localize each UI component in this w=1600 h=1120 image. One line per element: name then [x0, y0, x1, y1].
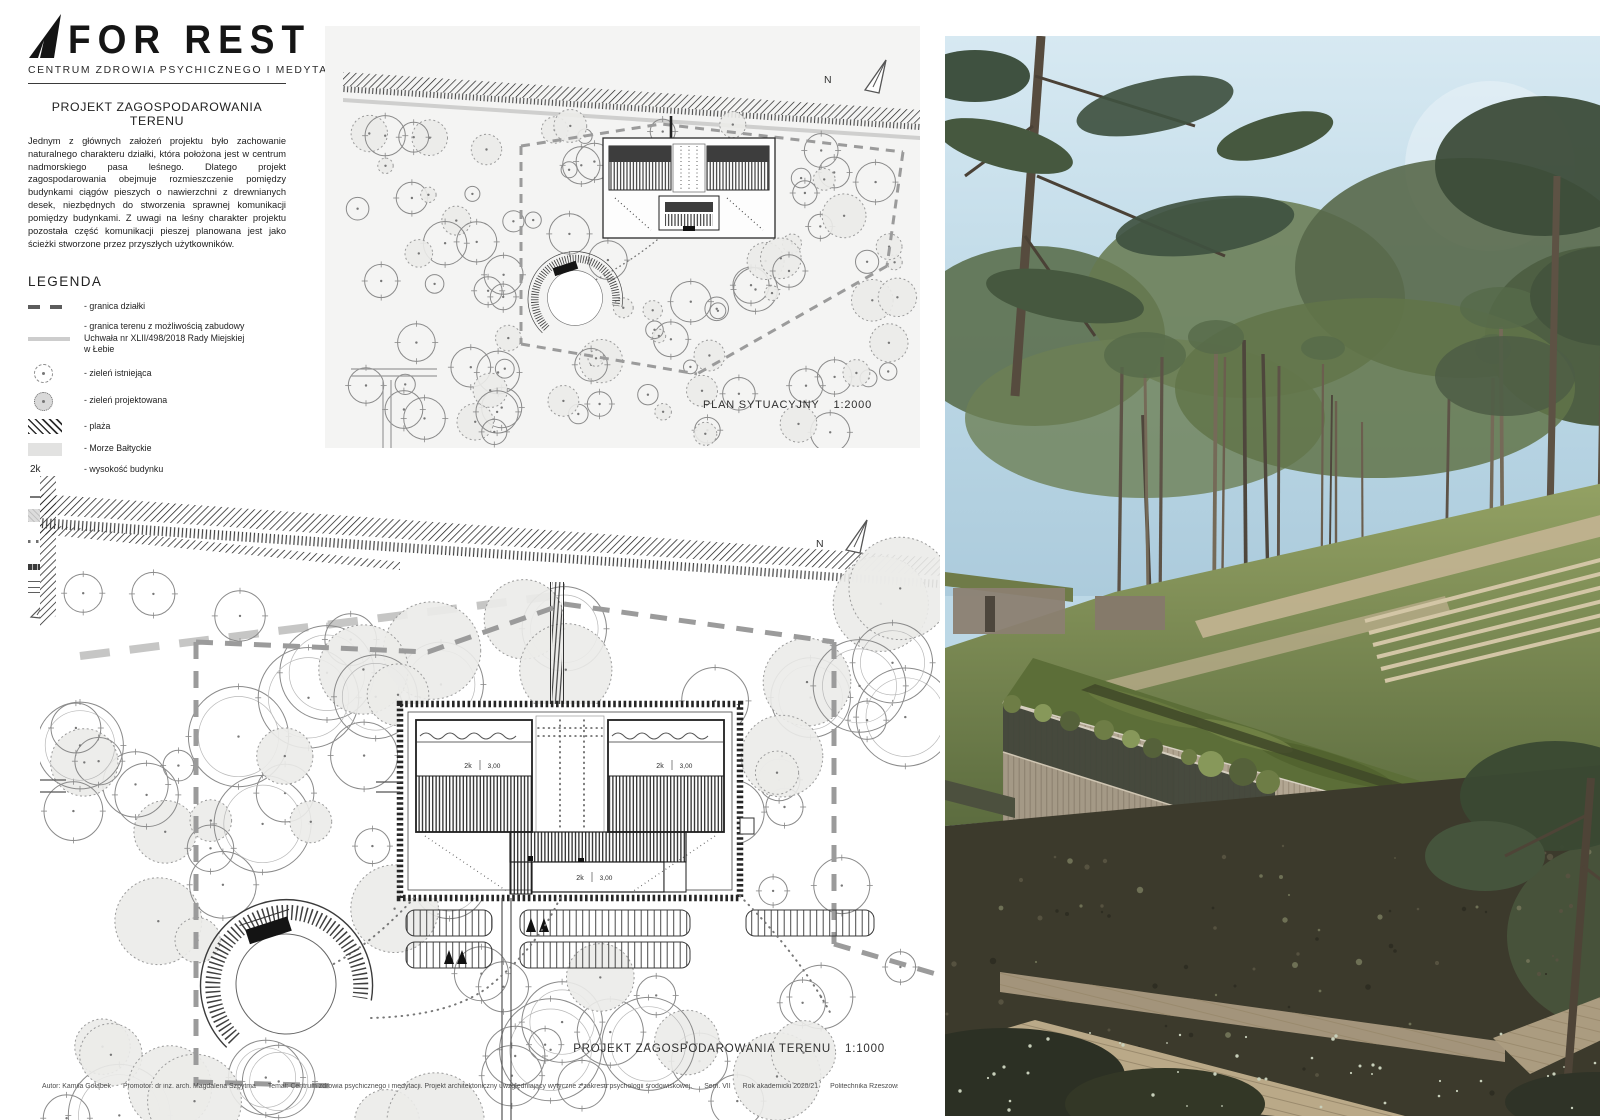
- flower-dot: [1009, 1100, 1012, 1103]
- tree-center-dot: [480, 973, 482, 975]
- plant: [1034, 704, 1052, 722]
- credit-author: Autor: Kamila Gołąbek: [42, 1083, 111, 1090]
- plant: [1229, 758, 1257, 786]
- beach-hatch-symbol: [28, 419, 84, 434]
- tree-center-dot: [899, 587, 901, 589]
- tree-center-dot: [363, 754, 365, 756]
- plant: [1003, 695, 1021, 713]
- ground-speck: [1537, 972, 1541, 976]
- tree-center-dot: [568, 233, 570, 235]
- flower-dot: [992, 1072, 995, 1075]
- tree-center-dot: [532, 219, 534, 221]
- tree-center-dot: [222, 884, 224, 886]
- flower-dot: [1378, 1066, 1381, 1069]
- flower-dot: [1177, 1071, 1179, 1073]
- tree-center-dot: [476, 241, 478, 243]
- flower-dot: [1331, 1037, 1335, 1041]
- ground-speck: [1137, 887, 1143, 893]
- tree-center-dot: [738, 393, 740, 395]
- proposed-green-symbol: [28, 392, 84, 411]
- svg-text:2k: 2k: [576, 875, 584, 882]
- tree-center-dot: [690, 301, 692, 303]
- ground-speck: [1555, 958, 1558, 961]
- tree-center-dot: [157, 920, 159, 922]
- ground-speck: [1545, 973, 1547, 975]
- tree-center-dot: [670, 338, 672, 340]
- ground-speck: [1377, 914, 1382, 919]
- ground-speck: [1259, 874, 1263, 878]
- ground-speck: [1038, 916, 1043, 921]
- tree-center-dot: [593, 160, 595, 162]
- tree-center-dot: [82, 592, 84, 594]
- tree-center-dot: [776, 1075, 778, 1077]
- flower-dot: [1007, 1108, 1010, 1111]
- sea-symbol: [28, 443, 84, 456]
- north-label: N: [816, 538, 824, 550]
- tree-center-dot: [653, 329, 655, 331]
- tree-center-dot: [471, 193, 473, 195]
- ground-speck: [1288, 1006, 1291, 1009]
- ground-speck: [946, 1013, 949, 1016]
- tree-center-dot: [595, 357, 597, 359]
- tree-trunk: [1214, 351, 1216, 607]
- ground-speck: [1319, 990, 1322, 993]
- flower-dot: [1371, 1063, 1374, 1066]
- flower-dot: [1552, 1072, 1555, 1075]
- tree-center-dot: [797, 423, 799, 425]
- tree-center-dot: [356, 208, 358, 210]
- legend-heading: LEGENDA: [28, 274, 286, 289]
- tree-center-dot: [754, 288, 756, 290]
- flower-dot: [1320, 1106, 1323, 1109]
- ground-speck: [1559, 909, 1563, 913]
- tree-center-dot: [655, 994, 657, 996]
- plant: [1181, 749, 1197, 765]
- flower-dot: [1563, 1066, 1565, 1068]
- render-photo: [945, 36, 1600, 1116]
- tree-center-dot: [622, 307, 624, 309]
- tree-center-dot: [384, 135, 386, 137]
- ground-speck: [1476, 906, 1479, 909]
- flower-dot: [1028, 1044, 1031, 1047]
- ground-speck: [1067, 858, 1073, 864]
- ground-speck: [1189, 1033, 1194, 1038]
- logo-title: FOR REST: [68, 20, 311, 60]
- flower-dot: [1456, 1090, 1458, 1092]
- ground-speck: [1393, 949, 1397, 953]
- tree-center-dot: [855, 372, 857, 374]
- tree-center-dot: [514, 1055, 516, 1057]
- tree-trunk: [1160, 357, 1162, 613]
- tree-center-dot: [871, 299, 873, 301]
- tree-center-dot: [368, 132, 370, 134]
- tree-center-dot: [801, 1002, 803, 1004]
- site-plan-1-2000: [325, 26, 920, 448]
- tree-center-dot: [561, 1021, 563, 1023]
- ground-speck: [1435, 961, 1439, 965]
- legend-item: 2k - wysokość budynku: [28, 464, 286, 475]
- building-complex: 2k 3,00 2k 3,00: [400, 704, 754, 898]
- ground-speck: [1569, 904, 1573, 908]
- flower-dot: [1166, 1042, 1168, 1044]
- ground-speck: [1107, 914, 1111, 918]
- ground-speck: [1356, 959, 1362, 965]
- ground-speck: [1389, 944, 1394, 949]
- tree-center-dot: [662, 130, 664, 132]
- ground-speck: [1302, 1067, 1305, 1070]
- flower-dot: [1371, 1073, 1373, 1075]
- ground-speck: [1165, 1025, 1168, 1028]
- legend-item: - zieleń istniejąca: [28, 364, 286, 383]
- ground-speck: [1225, 1032, 1231, 1038]
- tree-center-dot: [209, 847, 211, 849]
- tree-center-dot: [819, 225, 821, 227]
- tree-center-dot: [455, 219, 457, 221]
- plant: [1060, 711, 1080, 731]
- north-arrow: [865, 60, 886, 93]
- tree-center-dot: [776, 772, 778, 774]
- tree-center-dot: [487, 290, 489, 292]
- tree-center-dot: [134, 783, 136, 785]
- ground-speck: [998, 999, 1003, 1004]
- tree-center-dot: [152, 593, 154, 595]
- ground-speck: [1222, 855, 1226, 859]
- credit-university: Politechnika Rzeszowska: [830, 1083, 898, 1090]
- ground-speck: [1296, 952, 1299, 955]
- tree-logo-icon: [28, 14, 62, 58]
- flower-dot: [1359, 1065, 1362, 1068]
- tree-center-dot: [239, 615, 241, 617]
- tree-center-dot: [717, 310, 719, 312]
- svg-text:3,00: 3,00: [488, 763, 501, 770]
- tree-center-dot: [599, 976, 601, 978]
- tree-center-dot: [493, 431, 495, 433]
- flower-dot: [1480, 1080, 1483, 1083]
- beach-hatch: [343, 72, 920, 124]
- tree-center-dot: [783, 806, 785, 808]
- tree-center-dot: [371, 845, 373, 847]
- tree-center-dot: [362, 668, 364, 670]
- legend-item: - granica terenu z możliwością zabudowy …: [28, 321, 286, 355]
- tree-center-dot: [806, 681, 808, 683]
- tree-center-dot: [716, 308, 718, 310]
- ground-speck: [951, 961, 956, 966]
- tree-inner-ring: [866, 678, 940, 757]
- ground-speck: [1288, 894, 1290, 896]
- tree-center-dot: [708, 354, 710, 356]
- existing-green-symbol: [28, 364, 84, 383]
- tree-center-dot: [164, 831, 166, 833]
- tree-canopy: [1460, 287, 1542, 329]
- tree-center-dot: [403, 408, 405, 410]
- flower-dot: [1119, 1042, 1121, 1044]
- tree-center-dot: [704, 433, 706, 435]
- flower-dot: [1384, 1102, 1387, 1105]
- tree-symbol: [43, 1095, 90, 1120]
- flower-dot: [1439, 1080, 1441, 1082]
- ground-speck: [1234, 985, 1237, 988]
- tree-center-dot: [904, 716, 906, 718]
- tree-center-dot: [502, 296, 504, 298]
- ground-speck: [1213, 926, 1217, 930]
- tree-center-dot: [609, 1031, 611, 1033]
- flower-dot: [1121, 1043, 1124, 1046]
- building-height-symbol: 2k: [28, 464, 84, 475]
- ground-speck: [1566, 874, 1571, 879]
- tree-center-dot: [284, 755, 286, 757]
- tree-center-dot: [97, 760, 99, 762]
- tree-center-dot: [193, 1100, 195, 1102]
- tree-center-dot: [887, 370, 889, 372]
- flower-dot: [1151, 1093, 1154, 1096]
- svg-text:2k: 2k: [464, 763, 472, 770]
- tree-center-dot: [497, 371, 499, 373]
- flower-dot: [1245, 1036, 1247, 1038]
- logo: FOR REST: [28, 14, 286, 58]
- tree-center-dot: [568, 169, 570, 171]
- intro-section: PROJEKT ZAGOSPODAROWANIA TERENU Jednym z…: [28, 100, 286, 250]
- tree-canopy: [1104, 332, 1186, 378]
- tree-center-dot: [771, 292, 773, 294]
- tree-center-dot: [823, 178, 825, 180]
- north-label: N: [824, 74, 832, 86]
- tree-center-dot: [307, 697, 309, 699]
- plan1-caption: PLAN SYTUACYJNY1:2000: [520, 399, 872, 411]
- tree-center-dot: [896, 296, 898, 298]
- tree-center-dot: [413, 136, 415, 138]
- tree-center-dot: [843, 215, 845, 217]
- tree-center-dot: [380, 280, 382, 282]
- asphalt-road: [351, 369, 437, 448]
- flower-dot: [1350, 1072, 1352, 1074]
- flower-dot: [1235, 1054, 1238, 1057]
- tree-center-dot: [423, 417, 425, 419]
- tree-center-dot: [261, 823, 263, 825]
- svg-text:3,00: 3,00: [600, 875, 613, 882]
- tree-center-dot: [732, 123, 734, 125]
- tree-center-dot: [772, 890, 774, 892]
- ground-speck: [1108, 1029, 1111, 1032]
- ground-speck: [1485, 911, 1487, 913]
- ground-speck: [1389, 910, 1392, 913]
- tree-center-dot: [75, 727, 77, 729]
- flower-dot: [1046, 1037, 1049, 1040]
- ground-speck: [1292, 962, 1298, 968]
- tree-center-dot: [365, 384, 367, 386]
- tree-center-dot: [145, 794, 147, 796]
- tree-center-dot: [118, 1114, 120, 1116]
- tree-center-dot: [496, 411, 498, 413]
- ground-speck: [1462, 907, 1466, 911]
- flower-dot: [1213, 1072, 1216, 1075]
- credit-year: Rok akademicki 2020/21: [743, 1083, 818, 1090]
- tree-center-dot: [310, 821, 312, 823]
- tree-center-dot: [474, 421, 476, 423]
- ground-speck: [999, 906, 1004, 911]
- flower-dot: [1594, 1062, 1597, 1065]
- legend-item: - Morze Bałtyckie: [28, 443, 286, 456]
- tree-center-dot: [237, 735, 239, 737]
- tree-center-dot: [502, 274, 504, 276]
- tree-center-dot: [444, 242, 446, 244]
- tree-center-dot: [874, 181, 876, 183]
- ground-speck: [1035, 961, 1037, 963]
- ground-speck: [1100, 904, 1103, 907]
- tree-center-dot: [177, 764, 179, 766]
- tree-center-dot: [866, 719, 868, 721]
- tree-center-dot: [800, 177, 802, 179]
- plant: [1143, 738, 1163, 758]
- tree-center-dot: [788, 270, 790, 272]
- tree-center-dot: [512, 220, 514, 222]
- tree-center-dot: [83, 761, 85, 763]
- ground-speck: [1552, 955, 1554, 957]
- flower-dot: [1089, 1032, 1091, 1034]
- plant: [1122, 730, 1140, 748]
- tree-center-dot: [404, 383, 406, 385]
- flower-dot: [1027, 1072, 1030, 1075]
- ground-speck: [1489, 1090, 1494, 1095]
- flower-dot: [1311, 1057, 1314, 1060]
- tree-center-dot: [384, 165, 386, 167]
- tree-center-dot: [647, 394, 649, 396]
- tree-center-dot: [504, 368, 506, 370]
- ground-speck: [1152, 983, 1157, 988]
- tree-center-dot: [418, 252, 420, 254]
- tree-center-dot: [750, 284, 752, 286]
- tree-center-dot: [65, 1117, 67, 1119]
- tree-center-dot: [858, 685, 860, 687]
- tree-center-dot: [736, 1100, 738, 1102]
- ground-speck: [1079, 904, 1082, 907]
- tree-center-dot: [565, 669, 567, 671]
- intro-heading: PROJEKT ZAGOSPODAROWANIA TERENU: [28, 100, 286, 128]
- ground-speck: [1315, 937, 1319, 941]
- ground-speck: [1054, 856, 1057, 859]
- ground-speck: [990, 958, 996, 964]
- tree-center-dot: [501, 406, 503, 408]
- tree-center-dot: [433, 283, 435, 285]
- tree-center-dot: [411, 197, 413, 199]
- flower-dot: [1438, 1095, 1441, 1098]
- flower-dot: [1571, 1107, 1573, 1109]
- ground-speck: [1365, 984, 1371, 990]
- ground-speck: [1084, 864, 1089, 869]
- tree-center-dot: [820, 149, 822, 151]
- credit-semester: Sem. VII: [704, 1083, 730, 1090]
- tree-center-dot: [888, 342, 890, 344]
- flower-dot: [1257, 1077, 1261, 1081]
- tree-center-dot: [210, 819, 212, 821]
- flower-dot: [1500, 1033, 1503, 1036]
- flower-dot: [1334, 1034, 1337, 1037]
- tree-symbol: [387, 1073, 484, 1120]
- flower-dot: [958, 1089, 961, 1092]
- ground-speck: [1409, 1023, 1412, 1026]
- north-arrow: [846, 520, 867, 553]
- flower-dot: [987, 1077, 989, 1079]
- logo-subtitle: CENTRUM ZDROWIA PSYCHICZNEGO I MEDYTACJI: [28, 65, 286, 84]
- tree-center-dot: [689, 366, 691, 368]
- tree-trunk: [1244, 340, 1246, 598]
- flower-dot: [1179, 1034, 1181, 1036]
- ground-speck: [1279, 875, 1283, 879]
- ground-speck: [1394, 857, 1396, 859]
- tree-center-dot: [397, 694, 399, 696]
- flower-dot: [1221, 1105, 1223, 1107]
- flower-dot: [1265, 1078, 1268, 1081]
- legend-item: - granica działki: [28, 301, 286, 312]
- tree-center-dot: [110, 1054, 112, 1056]
- svg-text:3,00: 3,00: [680, 763, 693, 770]
- tree-center-dot: [580, 164, 582, 166]
- flower-dot: [1002, 1065, 1005, 1068]
- legend-item: - plaża: [28, 419, 286, 434]
- flower-dot: [1547, 1075, 1549, 1077]
- tree-center-dot: [841, 884, 843, 886]
- parking: [406, 910, 874, 968]
- dashed-line-symbol: [28, 305, 84, 309]
- tree-center-dot: [415, 341, 417, 343]
- tree-center-dot: [72, 810, 74, 812]
- ground-speck: [1253, 968, 1256, 971]
- tree-center-dot: [893, 261, 895, 263]
- tree-center-dot: [833, 376, 835, 378]
- tree-center-dot: [569, 125, 571, 127]
- svg-text:2k: 2k: [656, 763, 664, 770]
- credit-topic: Temat: Centrum zdrowia psychicznego i me…: [268, 1083, 692, 1090]
- presentation-board: FOR REST CENTRUM ZDROWIA PSYCHICZNEGO I …: [0, 0, 1600, 1120]
- ground-speck: [1315, 1073, 1319, 1077]
- tree-center-dot: [507, 337, 509, 339]
- ground-speck: [1526, 959, 1530, 963]
- intro-paragraph: Jednym z głównych założeń projektu było …: [28, 135, 286, 250]
- access-road: [552, 582, 562, 704]
- tree-canopy: [1301, 336, 1345, 360]
- credits-footer: Autor: Kamila GołąbekPromotor: dr inż. a…: [42, 1083, 898, 1090]
- tree-center-dot: [265, 1076, 267, 1078]
- plant: [1198, 751, 1224, 777]
- ground-speck: [1282, 917, 1287, 922]
- ground-speck: [1547, 854, 1553, 860]
- tree-center-dot: [427, 194, 429, 196]
- ground-speck: [1065, 912, 1069, 916]
- tree-center-dot: [470, 366, 472, 368]
- tree-symbol: [811, 413, 850, 448]
- tree-center-dot: [652, 309, 654, 311]
- ground-speck: [1282, 845, 1284, 847]
- tree-center-dot: [393, 908, 395, 910]
- credit-promotor: Promotor: dr inż. arch. Magdalena Szpytm…: [123, 1083, 256, 1090]
- ground-speck: [1212, 907, 1215, 910]
- ground-speck: [1318, 929, 1321, 932]
- tree-center-dot: [866, 261, 868, 263]
- ground-speck: [1101, 911, 1103, 913]
- tree-canopy: [1188, 320, 1244, 354]
- plant: [1094, 720, 1114, 740]
- ground-speck: [1055, 909, 1058, 912]
- tree-center-dot: [485, 148, 487, 150]
- ground-speck: [1417, 908, 1420, 911]
- tree-center-dot: [577, 413, 579, 415]
- flower-dot: [1186, 1105, 1188, 1107]
- site-plan-1-1000: 2k 3,00 2k 3,00: [40, 476, 940, 1120]
- ground-speck: [1019, 878, 1023, 882]
- tree-center-dot: [701, 390, 703, 392]
- building-complex: [603, 138, 775, 238]
- tree-center-dot: [829, 431, 831, 433]
- tree-center-dot: [607, 259, 609, 261]
